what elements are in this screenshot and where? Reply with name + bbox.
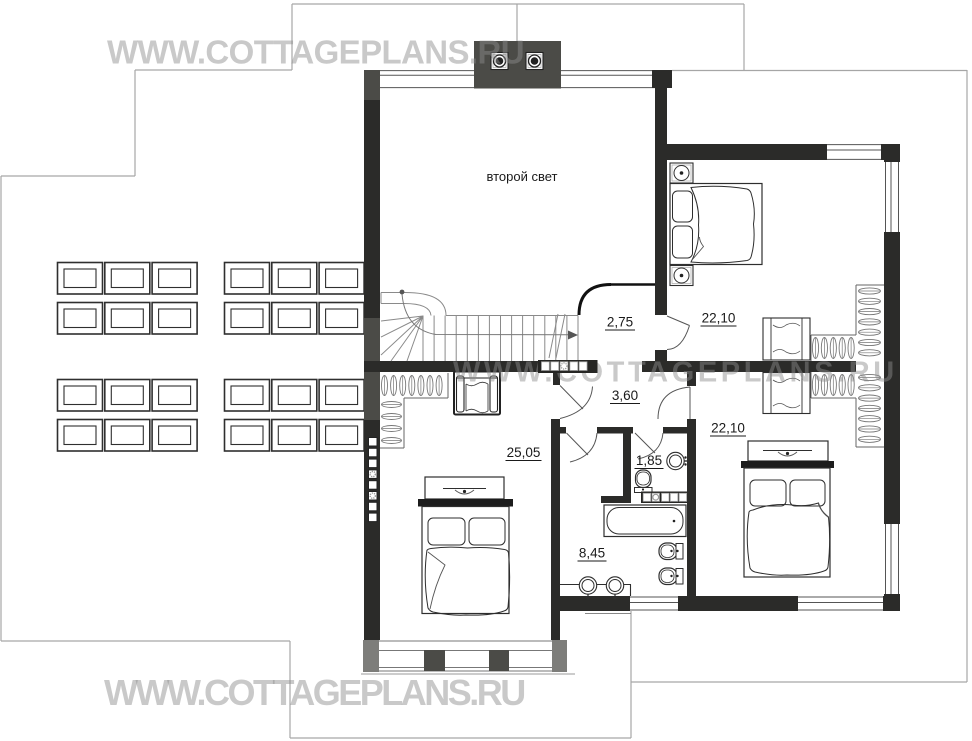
svg-text:3,60: 3,60: [612, 388, 638, 403]
svg-text:25,05: 25,05: [507, 445, 541, 460]
svg-text:8,45: 8,45: [579, 546, 605, 561]
svg-text:WWW.COTTAGEPLANS.RU: WWW.COTTAGEPLANS.RU: [107, 34, 524, 71]
svg-text:22,10: 22,10: [711, 421, 745, 436]
svg-text:второй свет: второй свет: [486, 169, 557, 184]
svg-text:WWW.COTTAGEPLANS.RU: WWW.COTTAGEPLANS.RU: [453, 357, 898, 389]
svg-text:22,10: 22,10: [702, 311, 736, 326]
svg-text:2,75: 2,75: [607, 315, 633, 330]
svg-text:1,85: 1,85: [636, 453, 662, 468]
svg-text:WWW.COTTAGEPLANS.RU: WWW.COTTAGEPLANS.RU: [104, 672, 524, 713]
